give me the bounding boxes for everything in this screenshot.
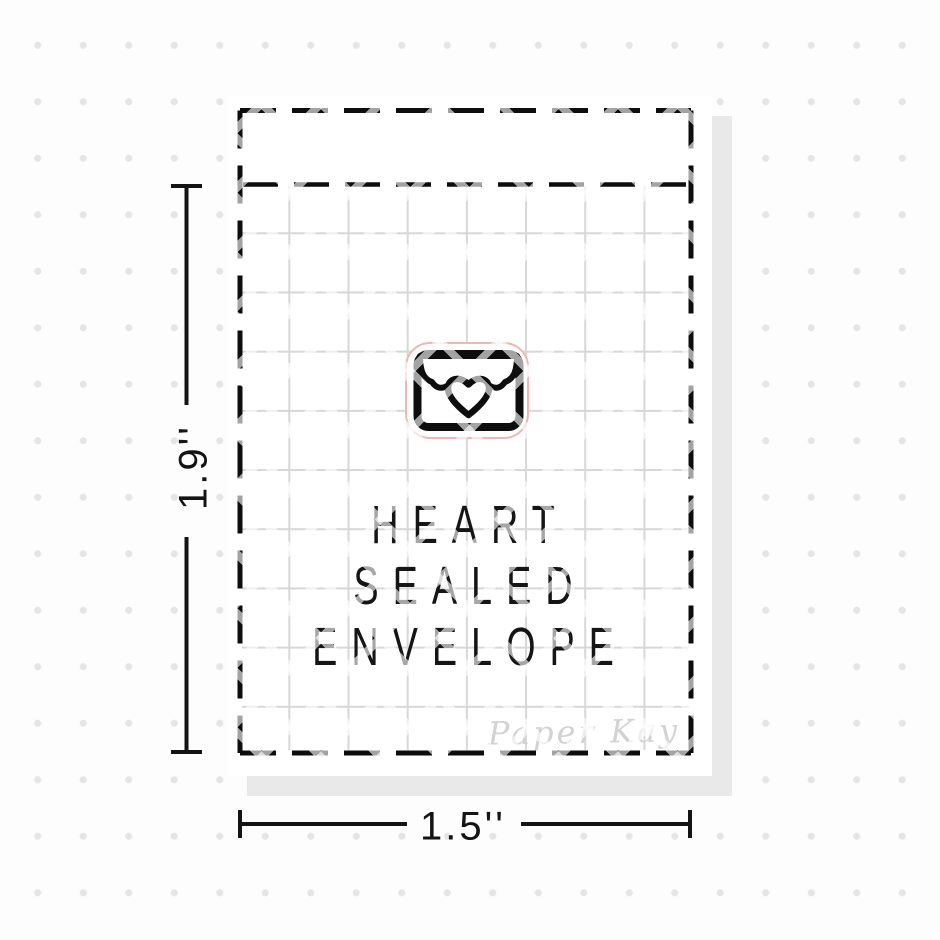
sticker-title-line-1: HEART	[357, 494, 568, 556]
sticker-title-line-2: SEALED	[339, 555, 586, 617]
heart-envelope-icon	[406, 343, 528, 438]
sticker-size-guide-image: HEART SEALED ENVELOPE 1.9'' 1.5'' Paper …	[0, 0, 940, 940]
width-dimension-label: 1.5''	[420, 805, 506, 850]
diagram-linework	[0, 0, 940, 940]
watermark-text: Paper Kay	[488, 711, 681, 752]
height-dimension-label: 1.9''	[172, 424, 217, 510]
sticker-title-line-3: ENVELOPE	[298, 616, 628, 678]
